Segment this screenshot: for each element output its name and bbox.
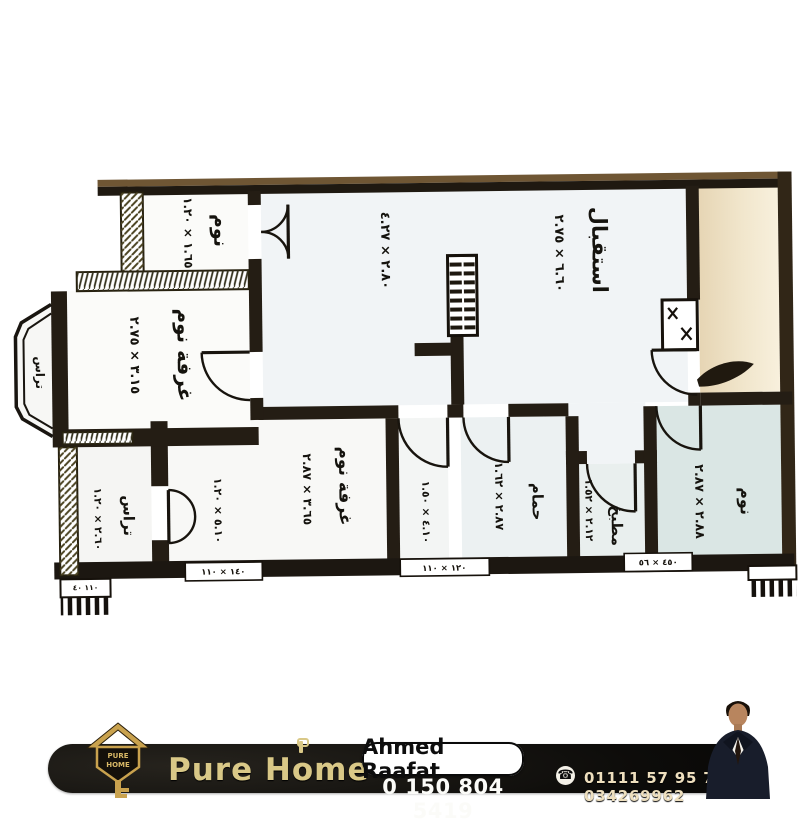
- agent-name-box: Ahmed Raafat: [362, 742, 524, 776]
- room-label-bay-terrace: تراس: [33, 356, 47, 389]
- meter-box: [662, 300, 698, 350]
- room-dims-passage: ٥.١٠ × ١.٢٠: [211, 478, 225, 544]
- phone-primary: 0 150 804 5419: [362, 775, 524, 823]
- room-dims-kitchen: ٢.١٢ × ١.٥٢: [582, 479, 595, 542]
- room-dims-terrace-bottom: ٢.٦٠ × ١.٢٠: [91, 488, 104, 551]
- room-dims-corridor: ٤.١٠ × ١.٥٠: [419, 481, 432, 544]
- room-dims-bedroom-left: ٣.١٥ × ٢.٧٥: [126, 317, 142, 395]
- floor-plan: ١٤٠ × ١١٠ ١٢٠ × ١١٠ ٤٥٠ × ٥٦ ١١٠ ٤٠ نوم …: [0, 0, 800, 690]
- brand-banner: PURE HOME Pure Home Ahmed Raafat 0 150 8…: [0, 690, 800, 800]
- brand-part1: Pure H: [168, 752, 292, 788]
- room-dims-bedroom-top: ١.٦٥ × ١.٢٠: [181, 197, 196, 269]
- logo-text-line1: PURE: [108, 752, 129, 760]
- key-shaft: [115, 780, 121, 798]
- phone-icon: ☎: [556, 766, 575, 785]
- room-label-bedroom-top: نوم: [209, 214, 231, 247]
- room-dims-bathroom: ٢.٨٧ × ١.٦٢: [492, 462, 507, 531]
- room-label-bedroom-right: نوم: [736, 487, 755, 515]
- pure-home-logo: PURE HOME: [82, 722, 154, 800]
- window-tag: ١١٠ ٤٠: [73, 583, 99, 592]
- room-dims-bedroom-right: ٢.٨٨ × ٢.٨٧: [692, 464, 708, 539]
- room-label-bedroom-middle: غرفة نوم: [334, 446, 355, 525]
- agent-photo: [686, 697, 790, 799]
- brand-key-o: o: [292, 752, 314, 788]
- window-tag: ٤٥٠ × ٥٦: [639, 558, 678, 568]
- room-dims-hall: ٢.٨٠ × ٤.٢٧: [377, 212, 393, 290]
- room-label-bathroom: حمام: [528, 483, 546, 521]
- brand-wordmark: Pure Home: [168, 752, 369, 788]
- room-dims-reception: ٦.٦٠ × ٢.٧٥: [551, 214, 567, 292]
- room-label-bedroom-left: غرفة نوم: [172, 308, 197, 401]
- room-dims-bedroom-middle: ٣.٦٥ × ٢.٨٧: [300, 454, 315, 526]
- window-tag: ١٢٠ × ١١٠: [422, 563, 466, 574]
- logo-text-line2: HOME: [106, 761, 130, 769]
- window-tag: ١٤٠ × ١١٠: [201, 567, 245, 578]
- room-label-kitchen: مطبخ: [608, 505, 626, 546]
- room-label-terrace-bottom: تراس: [119, 495, 137, 536]
- room-label-reception: استقبال: [587, 207, 612, 294]
